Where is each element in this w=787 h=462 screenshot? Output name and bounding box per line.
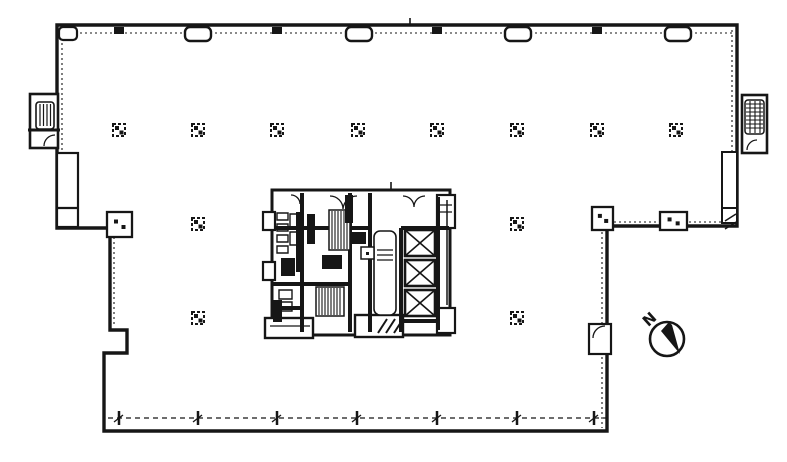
door-box xyxy=(589,324,611,354)
column-marker-dot xyxy=(598,131,602,135)
column-marker-dot xyxy=(115,126,119,130)
wall-column-box-dot xyxy=(114,220,118,224)
core-bottom-left-vestibule xyxy=(265,318,313,338)
wall-column-box-dot xyxy=(668,217,672,221)
lower-right-door xyxy=(589,324,611,354)
column-marker-dot xyxy=(438,131,442,135)
right-exterior-stair xyxy=(742,95,767,153)
column-marker-dot xyxy=(677,131,681,135)
wall-column-box-dot xyxy=(598,214,602,218)
wall-column-box-dot xyxy=(604,219,608,223)
top-wall-mullion-tick xyxy=(114,27,124,34)
north-arrow-compass: N xyxy=(639,308,684,356)
column-marker-dot xyxy=(194,126,198,130)
column-marker-dot xyxy=(513,220,517,224)
corner-column-marker xyxy=(59,27,77,40)
wall-column-box-dot xyxy=(676,221,680,225)
column-marker-dot xyxy=(518,319,522,323)
column-marker-dot xyxy=(359,131,363,135)
column-marker xyxy=(511,218,523,230)
column-marker xyxy=(352,124,364,136)
column-marker xyxy=(511,312,523,324)
column-marker xyxy=(670,124,682,136)
column-marker-dot xyxy=(513,126,517,130)
elevator-shaft xyxy=(405,290,435,316)
column-marker-dot xyxy=(433,126,437,130)
column-marker xyxy=(431,124,443,136)
column-marker-dot xyxy=(513,314,517,318)
wall-column-box xyxy=(660,212,687,230)
column-marker-dot xyxy=(273,126,277,130)
floor-plan-sheet: N xyxy=(0,0,787,462)
core-left-closet-lower xyxy=(263,262,275,280)
top-wall-column-marker xyxy=(505,27,531,41)
wall-column-box-outline xyxy=(660,212,687,230)
core-stair-lower xyxy=(316,287,344,316)
column-marker-dot xyxy=(593,126,597,130)
column-marker xyxy=(113,124,125,136)
core-bottom-center-vestibule xyxy=(355,315,403,337)
floor-plan-canvas: N xyxy=(0,0,787,462)
top-wall-column-marker xyxy=(665,27,691,41)
wall-column-box xyxy=(592,207,613,230)
elevator-shaft xyxy=(405,260,435,286)
column-marker-dot xyxy=(199,131,203,135)
column-marker xyxy=(511,124,523,136)
top-wall-column-marker xyxy=(346,27,372,41)
column-marker-dot xyxy=(354,126,358,130)
column-marker-dot xyxy=(278,131,282,135)
column-marker-dot xyxy=(672,126,676,130)
left-exterior-stair xyxy=(28,94,60,148)
column-marker-dot xyxy=(518,131,522,135)
column-marker-dot xyxy=(518,225,522,229)
column-marker-dot xyxy=(199,225,203,229)
wall-column-box-outline xyxy=(107,212,132,237)
top-wall-mullion-tick xyxy=(272,27,282,34)
column-marker-dot xyxy=(194,314,198,318)
wall-column-box-dot xyxy=(122,225,126,229)
column-marker xyxy=(192,124,204,136)
right-wall-shaft xyxy=(722,152,737,229)
elevator-bank xyxy=(405,230,435,316)
column-marker xyxy=(192,312,204,324)
equipment-box-dot xyxy=(366,252,369,255)
core-left-closet-upper xyxy=(263,212,275,230)
left-wall-shaft xyxy=(57,153,78,227)
column-marker xyxy=(192,218,204,230)
top-wall-column-marker xyxy=(185,27,211,41)
column-marker-dot xyxy=(194,220,198,224)
column-marker xyxy=(591,124,603,136)
wall-column-box xyxy=(107,212,132,237)
top-wall-mullion-tick xyxy=(592,27,602,34)
duct-shaft xyxy=(374,231,396,315)
left-shaft-room xyxy=(57,153,78,227)
right-shaft-room xyxy=(722,152,737,208)
column-marker-dot xyxy=(120,131,124,135)
wall-column-box-outline xyxy=(592,207,613,230)
column-marker-dot xyxy=(199,319,203,323)
top-wall-mullion-tick xyxy=(432,27,442,34)
elevator-shaft xyxy=(405,230,435,256)
column-marker xyxy=(271,124,283,136)
